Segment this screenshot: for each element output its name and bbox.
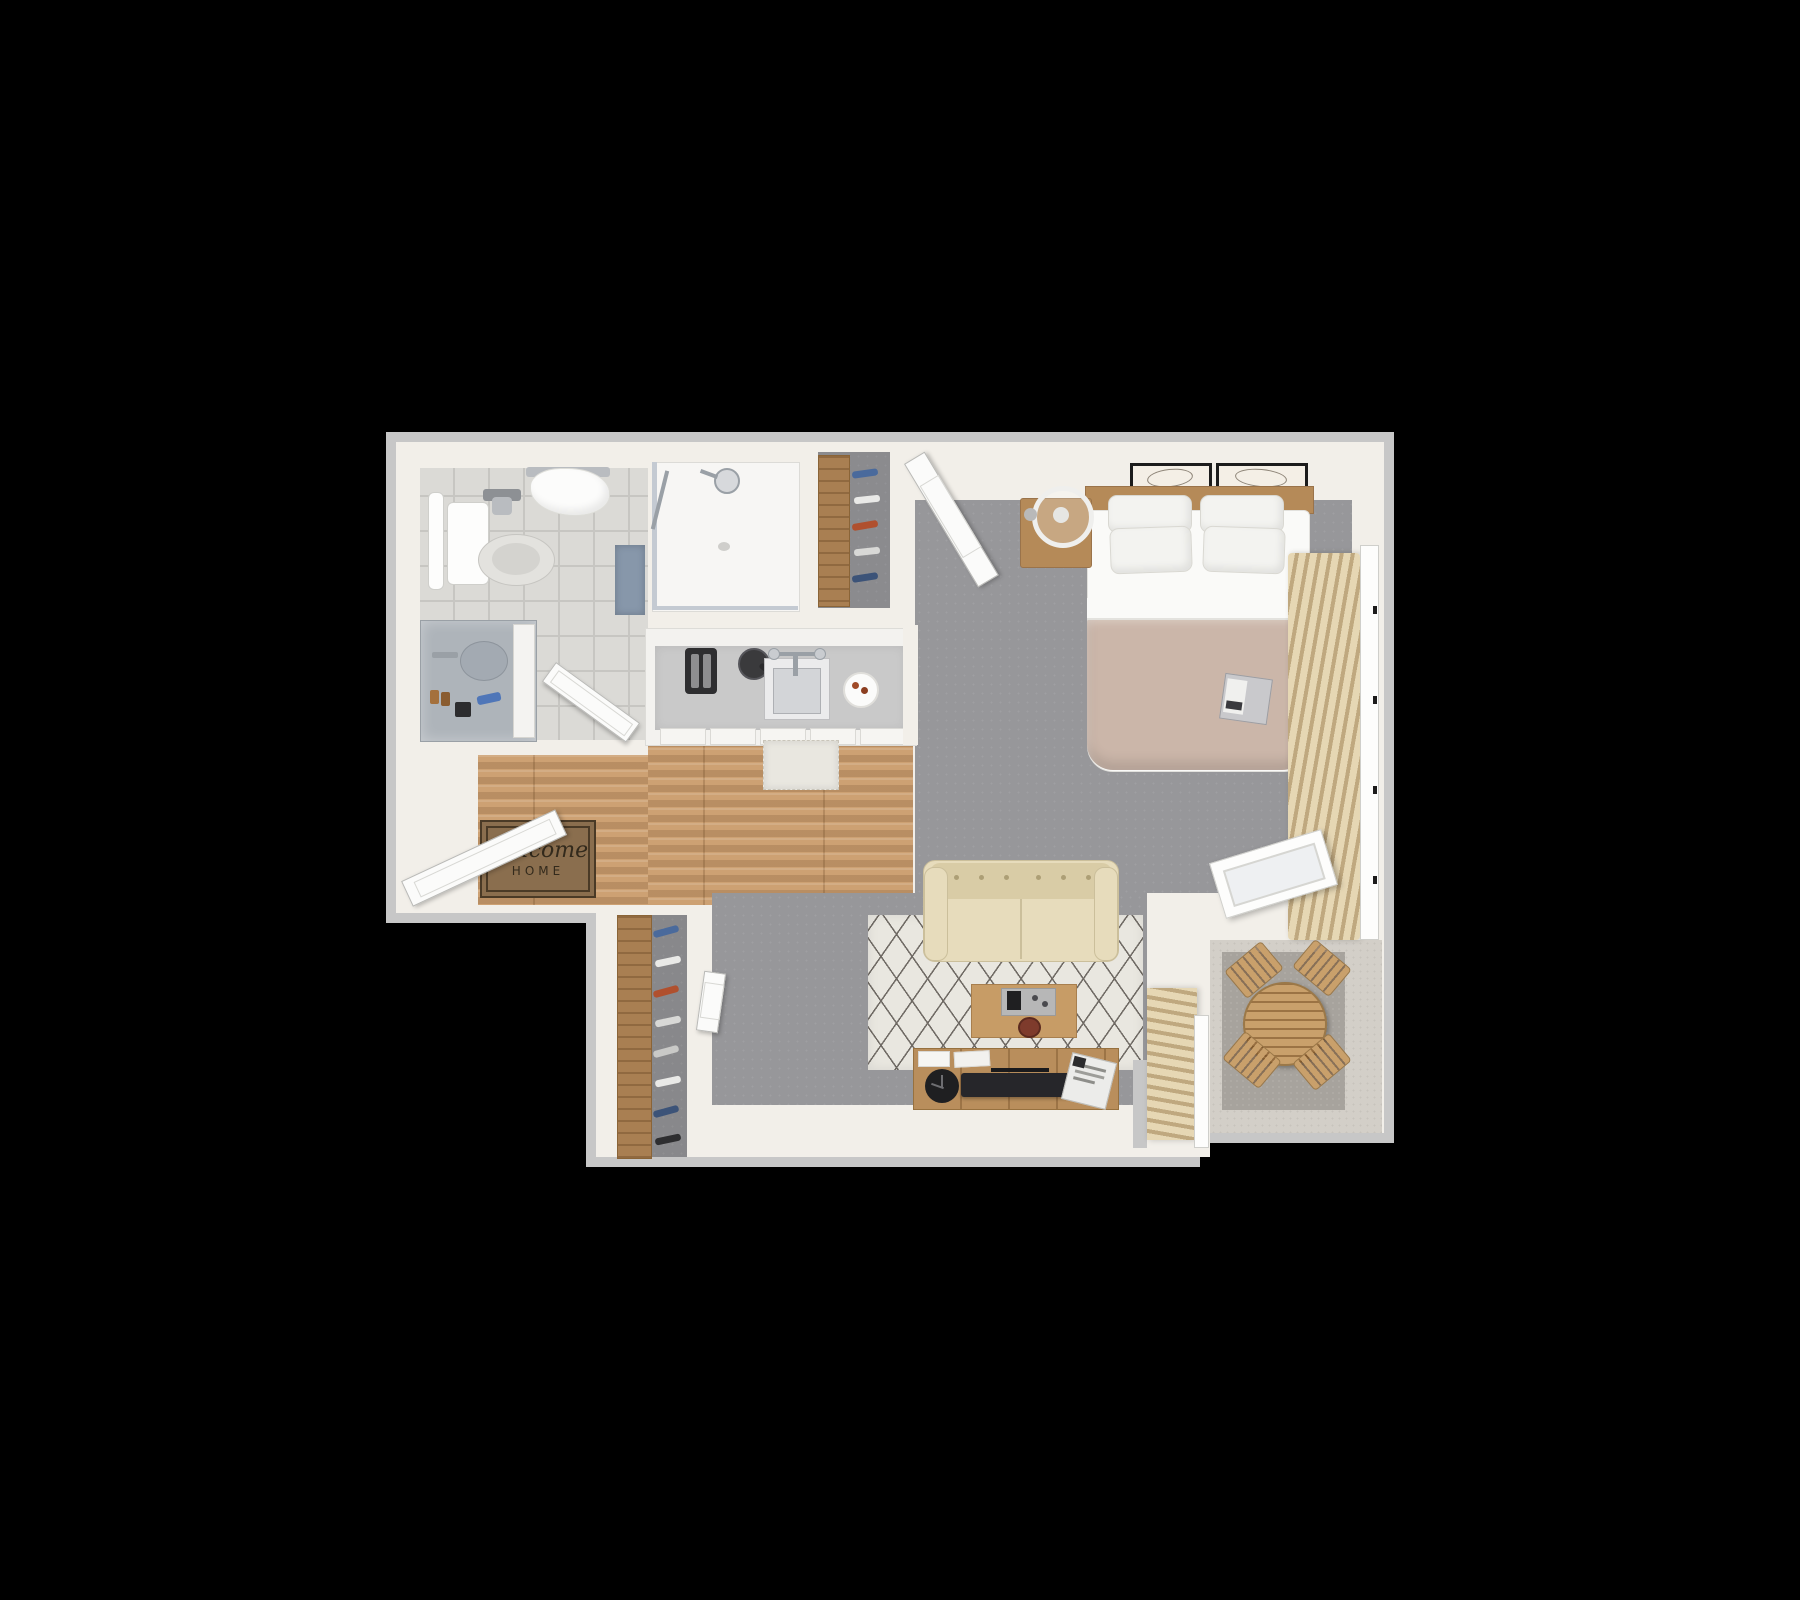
toilet-paper-roll <box>492 497 512 515</box>
ring-lamp <box>1032 486 1094 548</box>
faucet-spout <box>793 654 798 676</box>
vanity-faucet <box>432 652 458 658</box>
sofa-arm-right <box>1094 867 1118 961</box>
shower-glass-front <box>652 606 798 610</box>
remote <box>1007 991 1021 1010</box>
console-paper <box>954 1050 991 1068</box>
cabinet-door <box>860 728 906 745</box>
entry-closet-floor <box>650 915 687 1157</box>
sliding-door-frame <box>1194 1015 1209 1148</box>
toaster-slot <box>703 654 711 688</box>
grab-bar <box>428 492 444 590</box>
shower-head <box>714 468 740 494</box>
sheet-fold <box>1087 598 1308 620</box>
shower-glass-left <box>652 462 657 610</box>
console-paper <box>918 1051 950 1067</box>
cabinet-door <box>710 728 756 745</box>
floorplan-scene: Welcome HOME <box>0 0 1800 1600</box>
cabinet-door <box>660 728 706 745</box>
food-bit <box>861 687 868 694</box>
bedroom-window <box>1360 545 1379 940</box>
shower-drain <box>718 542 730 551</box>
book-on-bed <box>1219 673 1273 725</box>
sofa-cushion-gap <box>1020 899 1022 959</box>
hall-closet-shelf <box>818 455 850 607</box>
food-bit <box>852 682 859 689</box>
faucet-handle-right <box>814 648 826 660</box>
sofa-back <box>930 863 1112 899</box>
vanity-basin <box>460 641 508 681</box>
kitchen-rug <box>763 740 839 790</box>
sofa-arm-left <box>924 867 948 961</box>
tv-stand-bar <box>991 1068 1049 1072</box>
soap-bottle-1 <box>430 690 439 704</box>
coaster <box>1018 1017 1041 1038</box>
soap-bottle-2 <box>441 692 450 706</box>
toaster <box>685 648 717 694</box>
pillow-front-left <box>1109 526 1193 575</box>
tv-console <box>913 1048 1119 1110</box>
soap-dispenser <box>455 702 471 717</box>
vertical-blinds-balcony <box>1147 988 1197 1140</box>
toilet-seat <box>492 543 540 575</box>
coffee-table <box>971 984 1077 1038</box>
counter-end-wall <box>903 625 918 745</box>
vanity-cabinet-doors <box>513 624 535 738</box>
magazines <box>1061 1052 1117 1110</box>
pillow-front-right <box>1202 526 1286 575</box>
sofa <box>923 860 1119 962</box>
balcony-bay-wall <box>1133 1060 1147 1148</box>
toaster-slot <box>691 654 699 688</box>
bath-mat <box>615 545 645 615</box>
faucet-handle-left <box>768 648 780 660</box>
speaker-clock <box>925 1069 959 1103</box>
entry-closet-shelf <box>617 915 652 1159</box>
doormat-caps: HOME <box>512 864 564 878</box>
duvet <box>1087 615 1308 770</box>
nightstand-cup <box>1024 508 1037 521</box>
